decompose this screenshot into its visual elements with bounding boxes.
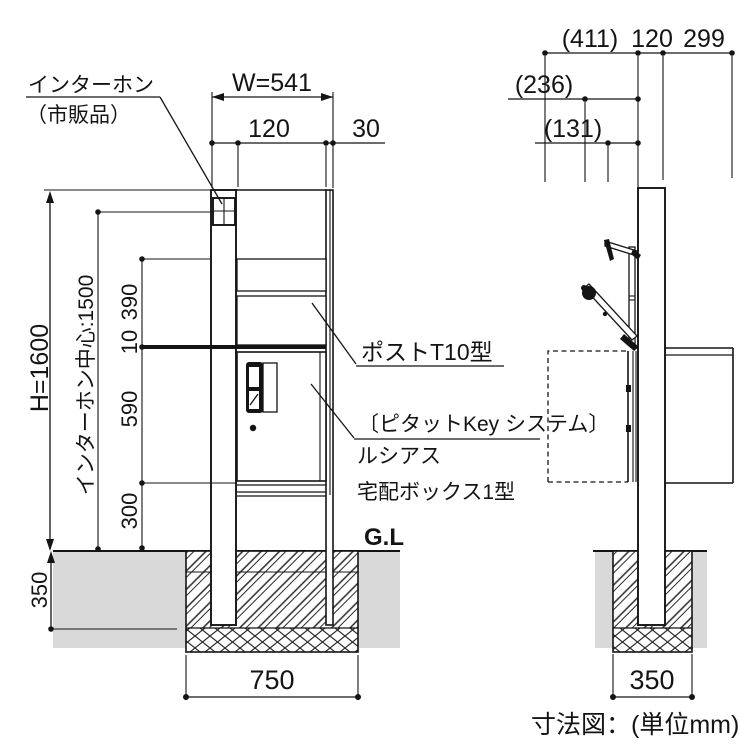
door-hinge-top <box>626 385 631 392</box>
side-door-closed <box>626 351 636 482</box>
post-t10-callout: ポストT10型 <box>312 303 504 366</box>
key-unit-cover <box>263 363 277 412</box>
key-system-label: 〔ピタットKey システム〕 <box>358 413 609 436</box>
door-hinge-bottom <box>626 425 631 432</box>
dimension-drawing-page: W=541 120 30 H=1600 インターホン中心:1500 390 10… <box>0 0 740 749</box>
keyhole <box>250 425 256 431</box>
dim-arm-depth: (131) <box>544 115 602 143</box>
intercom-label-line2: （市販品） <box>26 104 131 127</box>
dim-seg-10: 10 <box>117 330 142 354</box>
delivery-box-door <box>237 352 326 496</box>
front-left-post <box>211 190 236 625</box>
post-t10-flap-panel <box>237 259 326 291</box>
ground <box>53 551 707 648</box>
dim-foundation-width-side: 350 <box>629 665 674 695</box>
side-box-body <box>665 348 733 483</box>
series-label: ルシアス <box>357 445 441 468</box>
intercom-callout: インターホン （市販品） <box>26 74 222 204</box>
post-t10-label: ポストT10型 <box>361 339 493 365</box>
dim-box-depth: 299 <box>683 25 725 53</box>
dim-seg-300: 300 <box>117 493 142 530</box>
dim-intercom-center-height: インターホン中心:1500 <box>75 275 98 496</box>
intercom-label-line1: インターホン <box>28 74 154 97</box>
key-system-callout: 〔ピタットKey システム〕 <box>311 384 609 439</box>
dim-open-door-depth: (411) <box>562 25 619 53</box>
dim-total-height: H=1600 <box>26 324 54 412</box>
intercom-unit <box>213 198 235 225</box>
side-post <box>638 188 665 625</box>
lid-flap-hook <box>604 239 614 261</box>
ground-level-label: G.L <box>364 524 404 551</box>
dim-side-margin: 30 <box>352 115 380 143</box>
dimension-drawing: W=541 120 30 H=1600 インターホン中心:1500 390 10… <box>0 0 740 749</box>
dim-seg-390: 390 <box>117 284 142 321</box>
dim-post-width: 120 <box>248 115 290 143</box>
product-label: 宅配ボックス1型 <box>357 481 515 504</box>
dim-seg-590: 590 <box>117 391 142 428</box>
post-t10-open-lid-mechanism <box>581 239 641 351</box>
dim-total-width: W=541 <box>232 69 312 97</box>
dim-post-depth: 120 <box>631 25 673 53</box>
dimensions-bottom: 750 350 <box>183 654 695 700</box>
dimensions-side-top: (411) 120 299 (236) (131) <box>508 25 735 188</box>
dim-embed-depth: 350 <box>27 572 52 609</box>
dimensions-front-top: W=541 120 30 <box>209 69 385 188</box>
drawing-caption: 寸法図：(単位mm) <box>531 711 739 739</box>
dim-lid-open-depth: (236) <box>515 71 573 99</box>
dim-foundation-width-front: 750 <box>249 665 294 695</box>
